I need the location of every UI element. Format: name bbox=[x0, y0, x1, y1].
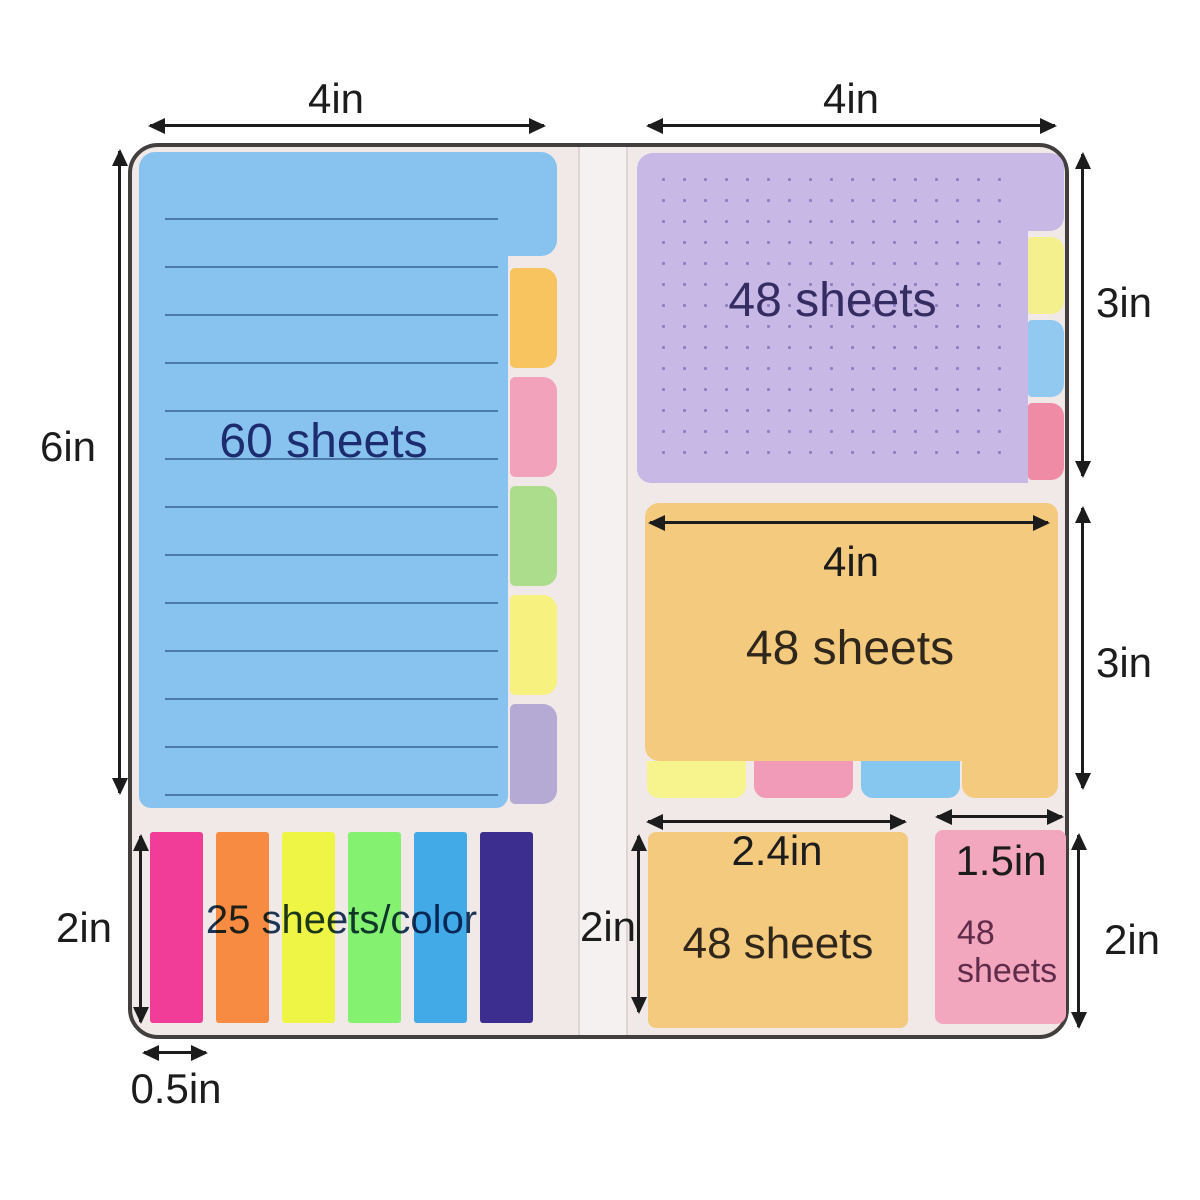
width-arrow-small-pink-pad bbox=[937, 815, 1062, 818]
dim-label-small-pink-width: 1.5in bbox=[931, 839, 1071, 883]
dim-label-blue-pad-height: 6in bbox=[8, 425, 128, 469]
width-arrow-small-orange-pad bbox=[648, 820, 905, 823]
purple-notepad-top-tab bbox=[1028, 153, 1064, 231]
dim-label-purple-pad-height: 3in bbox=[1064, 281, 1184, 325]
width-arrow-blue-pad bbox=[150, 124, 544, 127]
notepad-ruled-lines bbox=[165, 172, 498, 798]
orange-pad-divider-tabs bbox=[647, 761, 960, 798]
divider-tab bbox=[510, 377, 557, 477]
sticky-notes-dimension-diagram: 60 sheets 48 sheets 48 sheets 25 sheets/… bbox=[0, 0, 1200, 1200]
blue-notepad-top-tab bbox=[508, 152, 557, 256]
small-pink-sheet-count-line2: sheets bbox=[957, 954, 1057, 988]
width-arrow-orange-pad bbox=[650, 521, 1048, 524]
small-orange-sheet-count: 48 sheets bbox=[647, 922, 909, 966]
dim-label-flag-width: 0.5in bbox=[106, 1067, 246, 1111]
folder-spine bbox=[578, 147, 628, 1035]
orange-notepad-corner-tab bbox=[962, 760, 1058, 798]
divider-tab bbox=[510, 595, 557, 695]
blue-notepad: 60 sheets bbox=[139, 152, 508, 808]
dim-label-blue-pad-width: 4in bbox=[276, 77, 396, 121]
dim-label-small-pink-height: 2in bbox=[1072, 918, 1192, 962]
purple-pad-divider-tabs bbox=[1028, 237, 1064, 480]
dim-label-flags-height: 2in bbox=[24, 906, 144, 950]
width-arrow-purple-pad bbox=[648, 124, 1055, 127]
dim-label-orange-pad-height: 3in bbox=[1064, 641, 1184, 685]
purple-notepad: 48 sheets bbox=[637, 153, 1028, 483]
divider-tab bbox=[861, 761, 960, 798]
divider-tab bbox=[1028, 403, 1064, 480]
blue-pad-sheet-count: 60 sheets bbox=[139, 418, 508, 466]
divider-tab bbox=[647, 761, 746, 798]
dim-label-small-orange-width: 2.4in bbox=[707, 829, 847, 873]
divider-tab bbox=[1028, 320, 1064, 397]
dim-label-small-orange-height: 2in bbox=[548, 905, 668, 949]
width-arrow-flag bbox=[144, 1051, 206, 1054]
divider-tab bbox=[510, 268, 557, 368]
dim-label-orange-pad-width: 4in bbox=[791, 540, 911, 584]
height-arrow-blue-pad bbox=[118, 151, 121, 793]
divider-tab bbox=[754, 761, 853, 798]
orange-pad-sheet-count: 48 sheets bbox=[700, 625, 1000, 673]
divider-tab bbox=[1028, 237, 1064, 314]
divider-tab bbox=[510, 486, 557, 586]
purple-pad-sheet-count: 48 sheets bbox=[637, 277, 1028, 325]
dim-label-purple-pad-width: 4in bbox=[791, 77, 911, 121]
small-pink-sheet-count-line1: 48 bbox=[957, 916, 995, 950]
blue-pad-divider-tabs bbox=[510, 268, 557, 804]
flags-sheet-count: 25 sheets/color bbox=[150, 900, 533, 940]
divider-tab bbox=[510, 704, 557, 804]
